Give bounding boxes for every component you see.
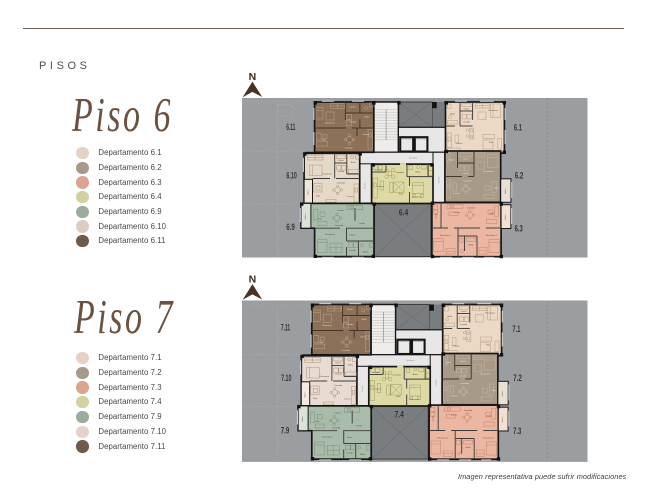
svg-text:7.2: 7.2: [513, 373, 522, 383]
svg-text:7.9: 7.9: [281, 426, 290, 436]
svg-text:6.2: 6.2: [515, 171, 524, 181]
svg-text:7.10: 7.10: [281, 373, 291, 383]
svg-text:6.9: 6.9: [286, 222, 295, 232]
svg-text:6.4: 6.4: [399, 207, 408, 217]
svg-text:7.11: 7.11: [281, 322, 290, 332]
svg-text:7.3: 7.3: [513, 426, 521, 436]
svg-text:N: N: [249, 71, 257, 83]
svg-text:7.4: 7.4: [395, 409, 404, 419]
svg-text:N: N: [249, 273, 257, 285]
svg-text:6.11: 6.11: [286, 122, 295, 132]
svg-text:7.1: 7.1: [512, 324, 520, 334]
svg-text:6.1: 6.1: [514, 123, 522, 133]
svg-text:6.3: 6.3: [515, 223, 523, 233]
svg-text:6.10: 6.10: [286, 170, 296, 180]
